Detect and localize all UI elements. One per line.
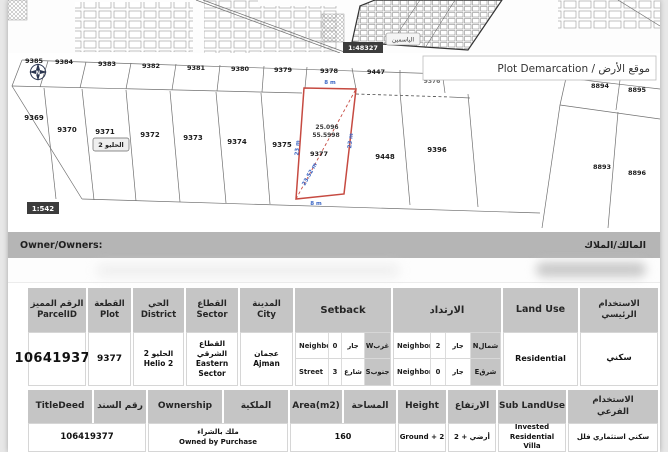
plot-number: 9372 (140, 131, 160, 139)
landuse-cell: Residential (503, 332, 578, 386)
header-label: الارتفاع (455, 401, 489, 413)
plot-number: 9385 (25, 57, 44, 65)
col-city-header: المدينة City (240, 288, 293, 332)
header-label: Area(m2) (292, 401, 339, 413)
header-label: Sector (196, 310, 227, 321)
col-district-header: الحي District (133, 288, 184, 332)
header-label: Ownership (158, 401, 212, 413)
plot-cell: 9377 (88, 332, 131, 386)
col-area-header: Area(m2) (290, 390, 342, 423)
deed-table-row: 106419377 ملك بالشراء Owned by Purchase … (28, 423, 658, 452)
height-ar: أرضي + 2 (454, 433, 490, 442)
plot-number: 9371 (95, 128, 115, 136)
col-irtidad-header: الارتداد (393, 288, 501, 332)
plot-number: 9381 (187, 64, 206, 72)
plot-number: 9370 (57, 126, 77, 134)
owner-label-en: Owner/Owners: (20, 240, 102, 251)
landuse-en: Residential (515, 354, 566, 365)
header-label: القطاع (197, 299, 227, 310)
map-title: Plot Demarcation / موقع الأرض (497, 62, 650, 75)
area-value: 160 (335, 432, 352, 443)
setback-direction: شمالN (471, 333, 500, 358)
dimension-label: 8 m (324, 80, 336, 86)
ownership-cell: ملك بالشراء Owned by Purchase (148, 423, 288, 452)
plot-number: 9447 (367, 68, 385, 76)
header-label: المدينة (252, 299, 281, 310)
city-blocks (204, 0, 258, 53)
col-titledeed-header: TitleDeed (28, 390, 92, 423)
overview-map: الياسمين 1:48327 (8, 0, 660, 53)
col-primary-use-header: الاستخدام الرئيسي (580, 288, 658, 332)
titledeed-value: 106419377 (60, 432, 113, 443)
plot-value: 9377 (97, 353, 122, 365)
district-label: الياسمين (392, 37, 414, 44)
district-cell: الحليو 2 Helio 2 (133, 332, 184, 386)
header-label: Setback (320, 304, 365, 317)
header-label: ParcelID (37, 310, 77, 321)
plot-number: 9378 (320, 67, 339, 75)
col-ownership-ar-header: الملكية (224, 390, 288, 423)
sub-landuse-cell: Invested Residential Villa (498, 423, 566, 452)
ownership-ar: ملك بالشراء (197, 428, 239, 437)
hatched-area (322, 14, 344, 42)
header-label: Plot (100, 310, 119, 321)
area-cell: 160 (290, 423, 396, 452)
city-en: Ajman (253, 359, 280, 369)
header-label: Height (405, 401, 439, 413)
owner-bar: Owner/Owners: المالك/الملاك (8, 232, 660, 258)
setback-values: Neighbor 0 جار غربW Street 3 شارع جنوبS (295, 332, 391, 386)
ownership-en: Owned by Purchase (179, 438, 257, 447)
owner-row (8, 258, 660, 283)
plot-number: 9369 (24, 114, 44, 122)
setback-type-ar: جار (446, 333, 471, 358)
header-label: TitleDeed (36, 401, 85, 413)
setback-type: Neighbor (394, 359, 431, 385)
city-ar: عجمان (254, 349, 279, 359)
plot-number: 8893 (593, 163, 611, 171)
sub-landuse-ar-cell: سكني استثماري فلل (568, 423, 658, 452)
dimension-label: 8 m (310, 201, 322, 207)
parcel-table-row: 106419377 9377 الحليو 2 Helio 2 القطاع ا… (28, 332, 658, 386)
col-sector-header: القطاع Sector (186, 288, 238, 332)
setback-type-ar: جار (342, 333, 365, 358)
coordinate-value: 55.5998 (312, 132, 339, 139)
coordinate-value: 25.096 (315, 124, 338, 131)
col-height-header: Height (398, 390, 446, 423)
setback-direction: شرقE (471, 359, 500, 385)
header-label: الاستخدام الفرعي (583, 395, 643, 417)
redacted-owner-name (536, 262, 646, 277)
header-label: الارتداد (430, 304, 465, 317)
plot-number: 9374 (227, 138, 247, 146)
col-sub-landuse-header: Sub LandUse (498, 390, 566, 423)
setback-value: 0 (329, 333, 342, 358)
setback-type-ar: جار (446, 359, 471, 385)
header-label: المساحة (352, 401, 389, 413)
col-deed-number-header: رقم السند (94, 390, 146, 423)
col-height-ar-header: الارتفاع (448, 390, 496, 423)
plot-number: 9384 (55, 58, 74, 66)
setback-type: Neighbor (296, 333, 329, 358)
titledeed-cell: 106419377 (28, 423, 146, 452)
plot-number: 9380 (231, 65, 250, 73)
city-blocks (75, 2, 193, 52)
col-setback-header: Setback (295, 288, 391, 332)
sector-en: Eastern Sector (187, 359, 237, 379)
parcel-id-value: 106419377 (15, 350, 100, 368)
sub-landuse-ar: سكني استثماري فلل (577, 433, 649, 442)
sector-cell: القطاع الشرقي Eastern Sector (186, 332, 238, 386)
height-en: Ground + 2 (400, 433, 445, 442)
setback-value: 0 (431, 359, 446, 385)
setback-value: 2 (431, 333, 446, 358)
setback-type-ar: شارع (342, 359, 365, 385)
plot-number: 9375 (272, 141, 292, 149)
header-label: الرقم المميز (31, 299, 84, 310)
col-plot-header: القطعة Plot (88, 288, 131, 332)
col-ownership-header: Ownership (148, 390, 222, 423)
plot-number: 9379 (274, 66, 293, 74)
sector-ar: القطاع الشرقي (187, 339, 237, 359)
redacted-owner-name (98, 266, 398, 275)
height-cell: Ground + 2 (398, 423, 446, 452)
deed-table-header: TitleDeed رقم السند Ownership الملكية Ar… (28, 390, 658, 423)
setback-direction: غربW (365, 333, 390, 358)
header-label: الحي (148, 299, 169, 310)
header-label: القطعة (94, 299, 124, 310)
header-label: Sub LandUse (499, 401, 565, 413)
owner-label-ar: المالك/الملاك (584, 240, 646, 251)
header-label: City (257, 310, 276, 321)
header-label: District (141, 310, 176, 321)
page: الياسمين 1:48327 (0, 0, 668, 452)
plot-number: 9373 (183, 134, 203, 142)
plot-demarcation-map: 9385 9384 9383 9382 9381 9380 9379 9378 … (8, 53, 660, 228)
district-en: Helio 2 (144, 359, 174, 369)
col-parcel-header: الرقم المميز ParcelID (28, 288, 86, 332)
plot-number: 8895 (628, 86, 647, 94)
city-blocks (558, 0, 660, 30)
compass-n-label: N (36, 71, 40, 77)
plot-number: 9396 (427, 146, 447, 154)
plot-number: 8894 (591, 82, 610, 90)
parcel-id-cell: 106419377 (28, 332, 86, 386)
sub-landuse-en: Invested Residential Villa (504, 423, 560, 451)
header-label: رقم السند (97, 401, 143, 413)
header-label: Land Use (516, 304, 565, 316)
header-label: الملكية (241, 401, 272, 413)
selected-plot-number: 9377 (310, 150, 328, 158)
parcel-table-header: الرقم المميز ParcelID القطعة Plot الحي D… (28, 288, 658, 332)
city-cell: عجمان Ajman (240, 332, 293, 386)
height-ar-cell: أرضي + 2 (448, 423, 496, 452)
plot-number: 9448 (375, 153, 395, 161)
header-label: الاستخدام الرئيسي (590, 299, 648, 321)
district-badge-label: الحليو 2 (98, 141, 124, 149)
map-scale-text: 1:542 (32, 205, 54, 213)
landuse-ar: سكني (606, 353, 631, 364)
col-landuse-header: Land Use (503, 288, 578, 332)
setback-type: Street (296, 359, 329, 385)
setback-direction: جنوبS (365, 359, 390, 385)
irtidad-values: Neighbor 2 جار شمالN Neighbor 0 جار شرقE (393, 332, 501, 386)
district-ar: الحليو 2 (144, 349, 173, 359)
plot-number: 9383 (98, 60, 116, 68)
plot-demarcation-document: الياسمين 1:48327 (8, 0, 660, 452)
hatched-area (8, 0, 27, 20)
plot-number: 9382 (142, 62, 160, 70)
primary-use-cell: سكني (580, 332, 658, 386)
plot-number: 8896 (628, 169, 647, 177)
setback-type: Neighbor (394, 333, 431, 358)
setback-value: 3 (329, 359, 342, 385)
overview-scale-text: 1:48327 (348, 44, 378, 52)
col-sub-landuse-ar-header: الاستخدام الفرعي (568, 390, 658, 423)
col-area-ar-header: المساحة (344, 390, 396, 423)
